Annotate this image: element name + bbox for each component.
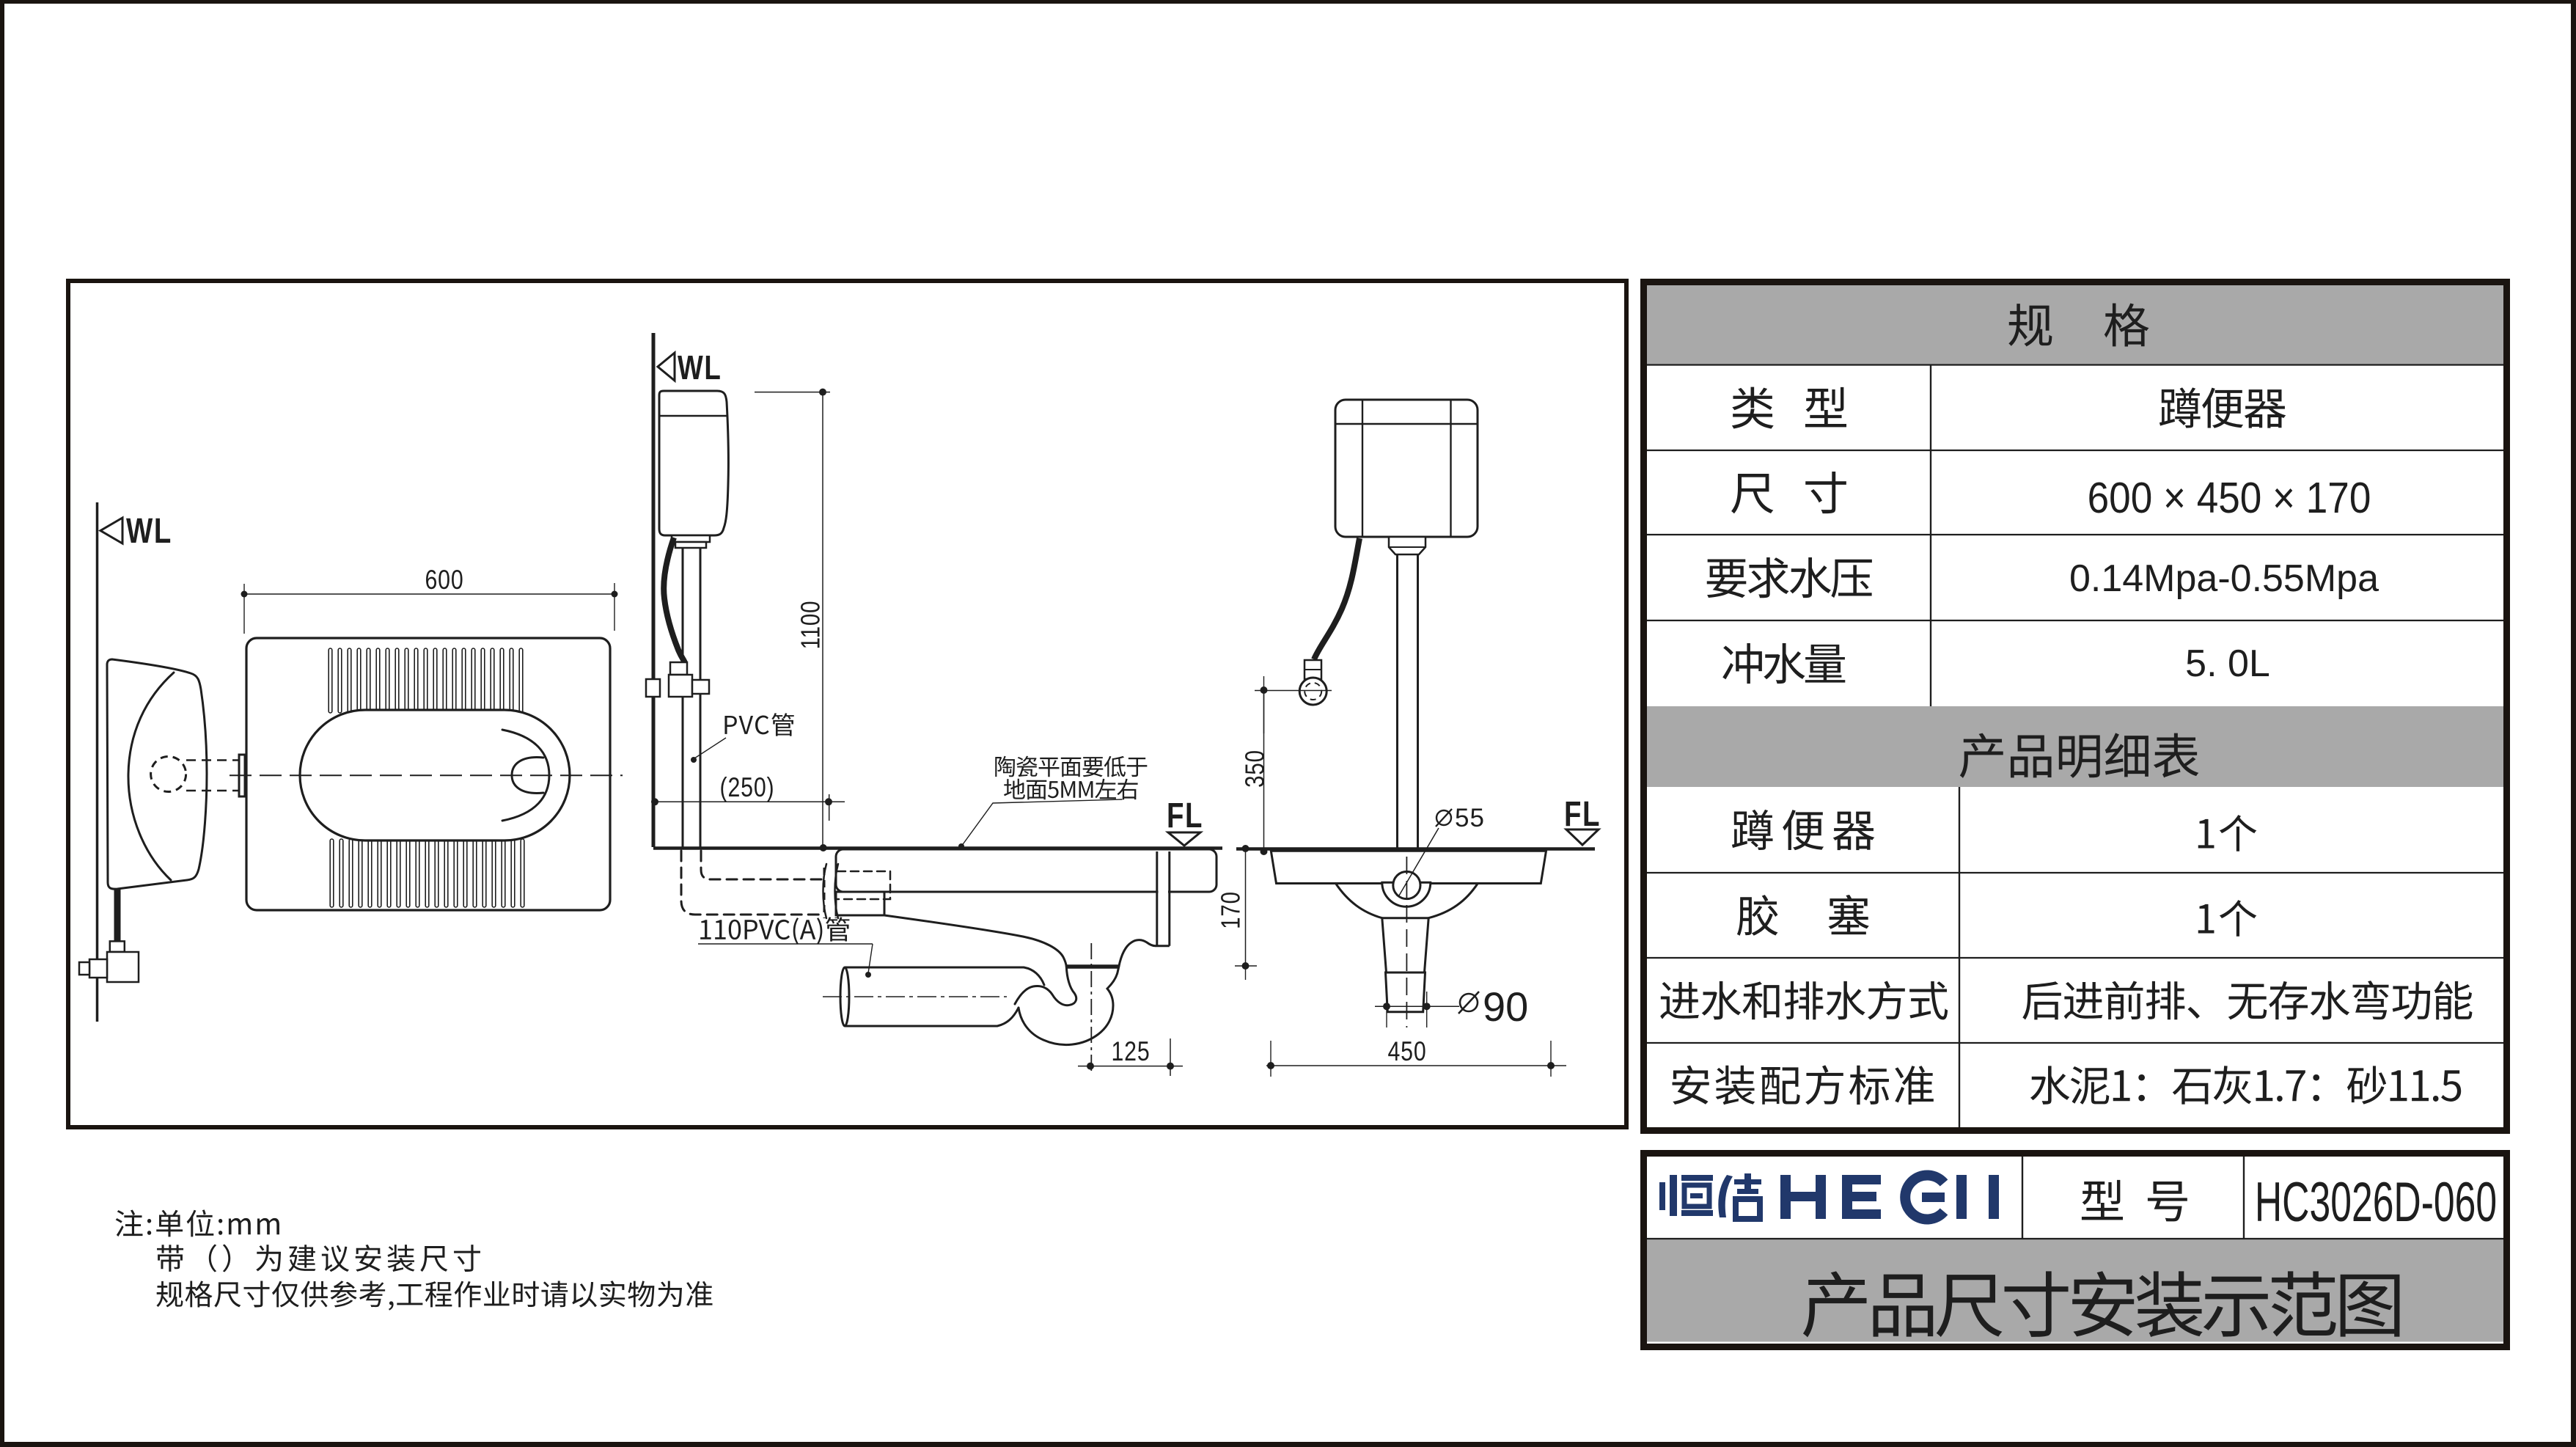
svg-text:HC3026D-060: HC3026D-060 [2255, 1171, 2497, 1233]
svg-text:(250): (250) [720, 772, 775, 803]
svg-text:600: 600 [425, 565, 463, 596]
svg-text:170: 170 [1216, 891, 1245, 929]
svg-text:600 × 450 × 170: 600 × 450 × 170 [2088, 473, 2371, 521]
svg-text:1100: 1100 [796, 601, 825, 650]
svg-text:0.14Mpa-0.55Mpa: 0.14Mpa-0.55Mpa [2069, 557, 2379, 600]
svg-text:55: 55 [1455, 804, 1485, 832]
svg-text:WL: WL [126, 512, 172, 551]
svg-text:350: 350 [1240, 750, 1269, 788]
svg-text:FL: FL [1564, 795, 1601, 834]
svg-text:450: 450 [1387, 1036, 1426, 1067]
svg-text:90: 90 [1483, 983, 1528, 1030]
svg-text:WL: WL [678, 348, 722, 387]
svg-text:5. 0L: 5. 0L [2185, 642, 2270, 685]
svg-text:FL: FL [1167, 796, 1203, 835]
svg-text:125: 125 [1111, 1036, 1150, 1067]
